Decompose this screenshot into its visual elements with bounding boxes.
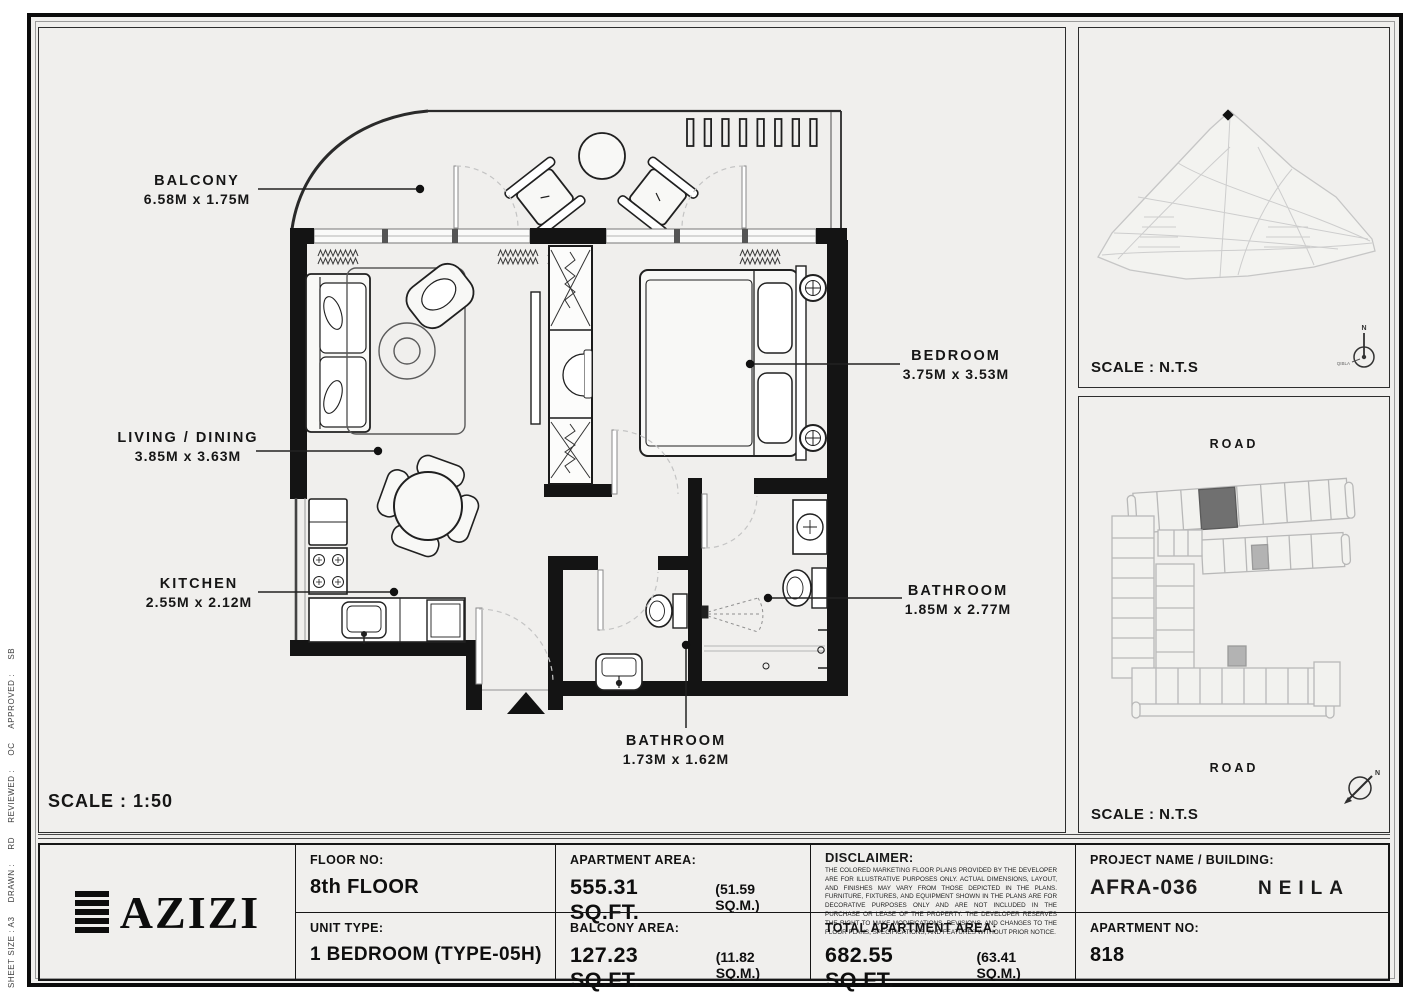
bathroom-main-dims: 1.85M x 2.77M: [853, 600, 1063, 618]
bedroom-dims: 3.75M x 3.53M: [851, 365, 1061, 383]
balcony-louvre: [687, 119, 817, 146]
svg-text:N: N: [1375, 770, 1380, 777]
apartment-no-value: 818: [1090, 944, 1376, 967]
project-building: NEILA: [1258, 878, 1350, 900]
dining-set: [375, 453, 482, 560]
balcony-chair-right: [617, 156, 700, 239]
label-bedroom: BEDROOM 3.75M x 3.53M: [851, 347, 1061, 383]
svg-text:N: N: [1361, 325, 1366, 332]
key-plan-gray-unit-1: [1252, 545, 1269, 570]
key-compass-icon: N: [1344, 770, 1380, 804]
road-bottom-label: ROAD: [1210, 761, 1259, 775]
floorplan-sheet: BALCONY 6.58M x 1.75M LIVING / DINING 3.…: [0, 0, 1414, 1000]
unit-type-cell: UNIT TYPE: 1 BEDROOM (TYPE-05H): [295, 912, 555, 979]
bathroom-main-name: BATHROOM: [853, 582, 1063, 600]
balcony-area-label: BALCONY AREA:: [570, 921, 798, 935]
bed: [640, 266, 806, 460]
key-plan-drawing: ROAD ROAD SCALE : N.T.S N: [1078, 396, 1390, 833]
kitchen-outer-wall: [296, 498, 305, 640]
sofa: [306, 274, 370, 432]
disclaimer-label: DISCLAIMER:: [825, 850, 1063, 865]
label-living: LIVING / DINING 3.85M x 3.63M: [83, 429, 293, 465]
key-plan-second-bar: [1201, 532, 1351, 574]
site-map-drawing: SCALE : N.T.S N QIBLA: [1078, 27, 1390, 388]
kitchen-dims: 2.55M x 2.12M: [94, 593, 304, 611]
apartment-area-cell: APARTMENT AREA: 555.31 SQ.FT. (51.59 SQ.…: [555, 845, 810, 912]
balcony-dims: 6.58M x 1.75M: [92, 190, 302, 208]
key-plan-gray-unit-2: [1228, 646, 1246, 666]
key-scale-label: SCALE : N.T.S: [1091, 806, 1198, 823]
brand-logo: AZIZI: [40, 845, 295, 979]
total-area-metric: (63.41 SQ.M.): [977, 949, 1064, 981]
key-plan-top-wing: [1127, 478, 1355, 535]
sheet-meta-text: SHEET SIZE : A3 DRAWN : RD REVIEWED : OC…: [7, 688, 16, 988]
entrance-marker: [507, 692, 545, 714]
label-bathroom-main: BATHROOM 1.85M x 2.77M: [853, 582, 1063, 618]
balcony-chair-left: [504, 156, 587, 239]
total-area-cell: TOTAL APARTMENT AREA: 682.55 SQ.FT. (63.…: [810, 912, 1075, 979]
wardrobe: [549, 246, 592, 484]
bedroom-name: BEDROOM: [851, 347, 1061, 365]
site-map-boundary: [1098, 111, 1375, 279]
kitchen-name: KITCHEN: [94, 575, 304, 593]
plan-scale-label: SCALE : 1:50: [48, 791, 173, 812]
key-plan-bottom-wing: [1132, 662, 1340, 718]
azizi-bars-icon: [75, 891, 109, 933]
balcony-area-metric: (11.82 SQ.M.): [716, 949, 798, 981]
total-area-value: 682.55 SQ.FT.: [825, 943, 967, 993]
total-area-label: TOTAL APARTMENT AREA:: [825, 921, 1063, 935]
apartment-no-label: APARTMENT NO:: [1090, 921, 1376, 935]
site-scale-label: SCALE : N.T.S: [1091, 359, 1198, 376]
unit-type-value: 1 BEDROOM (TYPE-05H): [310, 944, 543, 966]
road-top-label: ROAD: [1210, 437, 1259, 451]
brand-name: AZIZI: [120, 886, 260, 939]
bathroom-main-fixtures: [702, 500, 827, 669]
floor-no-value: 8th FLOOR: [310, 876, 543, 899]
bathroom-guest-name: BATHROOM: [571, 732, 781, 750]
unit-type-label: UNIT TYPE:: [310, 921, 543, 935]
apartment-area-label: APARTMENT AREA:: [570, 853, 798, 867]
project-label: PROJECT NAME / BUILDING:: [1090, 853, 1376, 867]
title-block: AZIZI FLOOR NO: 8th FLOOR UNIT TYPE: 1 B…: [38, 843, 1390, 981]
site-compass-icon: N QIBLA: [1337, 325, 1374, 367]
living-dims: 3.85M x 3.63M: [83, 447, 293, 465]
floor-no-label: FLOOR NO:: [310, 853, 543, 867]
balcony-area-cell: BALCONY AREA: 127.23 SQ.FT. (11.82 SQ.M.…: [555, 912, 810, 979]
living-name: LIVING / DINING: [83, 429, 293, 447]
floor-no-cell: FLOOR NO: 8th FLOOR: [295, 845, 555, 912]
titleblock-top-rule: [38, 834, 1390, 839]
key-plan-highlight-unit: [1199, 487, 1238, 529]
balcony-name: BALCONY: [92, 172, 302, 190]
label-bathroom-guest: BATHROOM 1.73M x 1.62M: [571, 732, 781, 768]
svg-text:QIBLA: QIBLA: [1337, 361, 1350, 366]
bathroom-guest-dims: 1.73M x 1.62M: [571, 750, 781, 768]
key-plan-stub: [1158, 530, 1202, 556]
disclaimer-cell: DISCLAIMER: THE COLORED MARKETING FLOOR …: [810, 845, 1075, 912]
balcony-area-value: 127.23 SQ.FT.: [570, 943, 706, 993]
bathroom-guest-fixtures: [596, 594, 687, 690]
project-code: AFRA-036: [1090, 876, 1198, 900]
apartment-area-metric: (51.59 SQ.M.): [715, 881, 798, 913]
balcony-table: [579, 133, 625, 179]
label-kitchen: KITCHEN 2.55M x 2.12M: [94, 575, 304, 611]
label-balcony: BALCONY 6.58M x 1.75M: [92, 172, 302, 208]
apartment-no-cell: APARTMENT NO: 818: [1075, 912, 1388, 979]
project-cell: PROJECT NAME / BUILDING: AFRA-036 NEILA: [1075, 845, 1388, 912]
tv-unit: [531, 292, 540, 424]
